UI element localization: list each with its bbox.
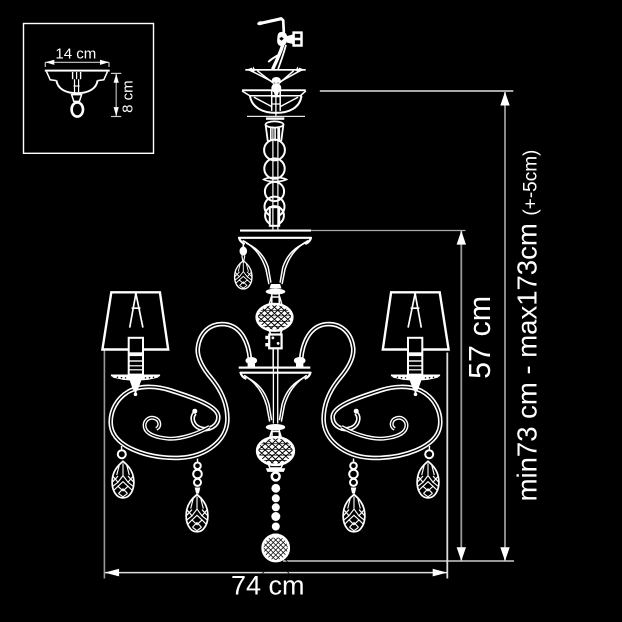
svg-text:74 cm: 74 cm	[231, 570, 305, 600]
svg-text:57 cm: 57 cm	[463, 296, 497, 379]
svg-text:8 cm: 8 cm	[120, 80, 137, 113]
svg-text:14 cm: 14 cm	[55, 46, 96, 63]
